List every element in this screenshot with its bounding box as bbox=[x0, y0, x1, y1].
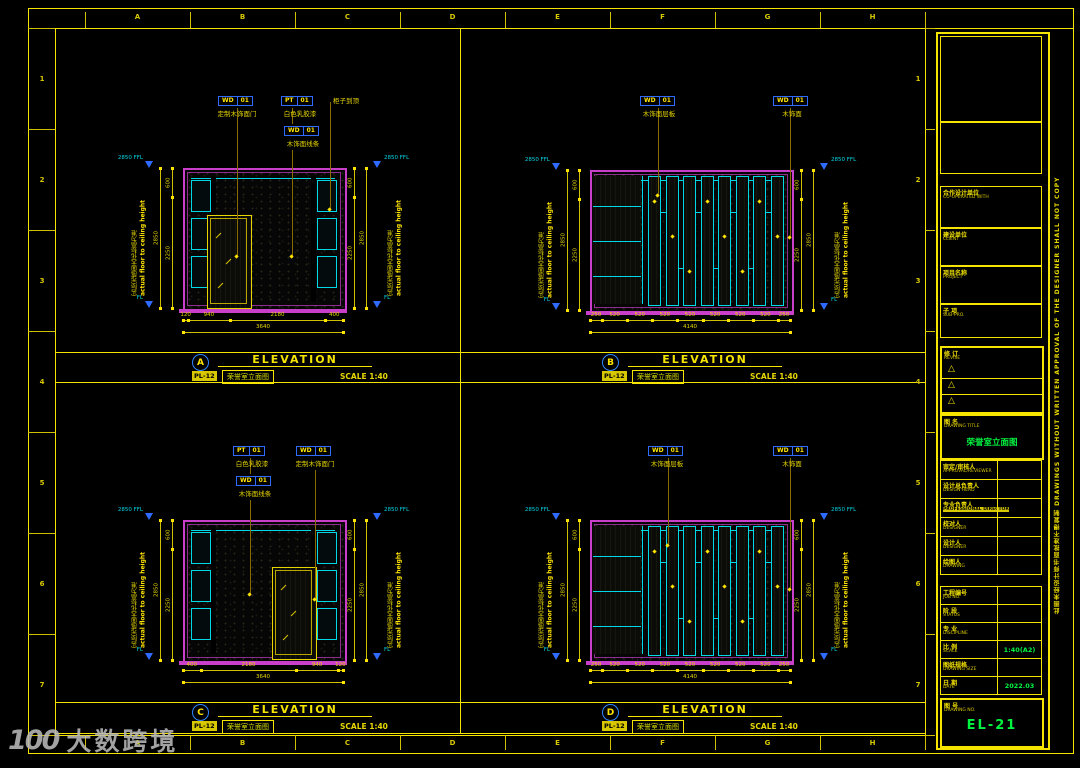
dim-value: 2250 bbox=[346, 239, 355, 267]
person-row: 设计总负责人DESIGN HEAD bbox=[940, 479, 1042, 499]
line bbox=[1073, 8, 1074, 754]
slat-panel bbox=[736, 176, 749, 306]
material-tag-text: 木饰面层板 bbox=[628, 108, 690, 118]
dim-tick bbox=[702, 669, 705, 672]
person-row: 设计人DESIGNER bbox=[940, 536, 1042, 556]
dim-tick bbox=[777, 669, 780, 672]
side-note-en: actual floor to ceiling height bbox=[842, 532, 850, 648]
level-text: 2850 FFL bbox=[831, 507, 871, 513]
person-row: 绘图人DRAWING bbox=[940, 555, 1042, 575]
material-tag-text: 白色乳胶漆 bbox=[221, 458, 283, 468]
dim-tick bbox=[295, 669, 298, 672]
field-label-en: DESIGNER bbox=[943, 545, 966, 550]
material-tag-code: WD bbox=[774, 97, 792, 105]
dim-tick bbox=[365, 519, 368, 522]
shelf-box bbox=[317, 180, 337, 212]
line bbox=[295, 735, 296, 750]
line bbox=[997, 480, 998, 498]
dim-tick bbox=[159, 659, 162, 662]
line bbox=[593, 556, 641, 557]
material-tag-text: 木饰面线条 bbox=[272, 138, 334, 148]
grid-letter-top: D bbox=[448, 13, 458, 21]
line bbox=[925, 735, 926, 750]
level-marker-icon bbox=[145, 161, 153, 168]
grid-letter-bottom: D bbox=[448, 739, 458, 747]
meta-row: 图纸规格DRAWING SIZE bbox=[940, 658, 1042, 677]
side-note-cn: 实际完成面天花标高为准 bbox=[834, 182, 842, 298]
material-tag-text: 定制木饰面门 bbox=[206, 108, 268, 118]
shelf-box bbox=[317, 570, 337, 602]
material-tag-code: 01 bbox=[667, 447, 682, 455]
elevation-mark: A bbox=[192, 354, 209, 371]
shelf-box bbox=[317, 532, 337, 564]
grid-letter-bottom: C bbox=[343, 739, 353, 747]
dim-value: 520 bbox=[678, 662, 702, 668]
field-label-en: PROJECT bbox=[943, 275, 962, 280]
level-text: 2850 FFL bbox=[384, 155, 424, 161]
slat-panel bbox=[753, 176, 766, 306]
material-tag: WD01 bbox=[236, 476, 271, 486]
line bbox=[942, 394, 1042, 395]
field-label-en: DISCIPLINE bbox=[943, 631, 968, 636]
dim-value: 600 bbox=[346, 521, 355, 549]
grid-letter-top: G bbox=[763, 13, 773, 21]
elevation-mark: D bbox=[602, 704, 619, 721]
line bbox=[28, 533, 55, 534]
level-marker-icon bbox=[552, 163, 560, 170]
dim-tick bbox=[589, 331, 592, 334]
dim-tick bbox=[676, 319, 679, 322]
side-note-en: actual floor to ceiling height bbox=[139, 532, 147, 648]
dim-value: 520 bbox=[703, 312, 727, 318]
material-tag: WD01 bbox=[640, 96, 675, 106]
line bbox=[997, 518, 998, 536]
line bbox=[593, 626, 641, 627]
line bbox=[315, 470, 316, 600]
wood-side-band bbox=[593, 526, 641, 654]
material-label: 柜子到顶 bbox=[333, 95, 359, 105]
level-marker-icon bbox=[820, 513, 828, 520]
cad-sheet: 100 大数跨境 AABBCCDDEEFFGGHH11223344556677W… bbox=[0, 0, 1080, 768]
slat-panel bbox=[718, 176, 731, 306]
logo-box bbox=[940, 36, 1042, 122]
material-tag-text: 木饰面 bbox=[761, 458, 823, 468]
dim-tick bbox=[342, 681, 345, 684]
meta-value: 1:40(A2) bbox=[998, 641, 1041, 658]
line bbox=[183, 332, 343, 333]
dim-value: 600 bbox=[571, 521, 580, 549]
line bbox=[925, 28, 926, 735]
line bbox=[997, 499, 998, 517]
level-marker-icon bbox=[373, 301, 381, 308]
dim-value: 520 bbox=[703, 662, 727, 668]
level-marker-icon bbox=[373, 653, 381, 660]
line bbox=[28, 129, 55, 130]
watermark-text: 大数跨境 bbox=[66, 722, 178, 758]
drawing-title-value: 荣誉室立面图 bbox=[942, 436, 1042, 448]
line bbox=[925, 331, 935, 332]
line bbox=[790, 458, 791, 590]
dim-value: 2180 bbox=[236, 662, 260, 668]
line bbox=[642, 526, 643, 654]
dim-tick bbox=[159, 519, 162, 522]
grid-number-left: 1 bbox=[36, 75, 48, 83]
line bbox=[997, 659, 998, 676]
dim-tick bbox=[342, 319, 345, 322]
material-tag-text: 木饰面层板 bbox=[636, 458, 698, 468]
side-note-cn: 实际完成面天花标高为准 bbox=[538, 532, 546, 648]
line bbox=[28, 28, 55, 29]
slat-panel bbox=[701, 176, 714, 306]
elevation-title: ELEVATION bbox=[220, 353, 370, 366]
dim-value: 2250 bbox=[346, 591, 355, 619]
material-tag-code: WD bbox=[641, 97, 659, 105]
level-marker-icon bbox=[552, 513, 560, 520]
line bbox=[211, 528, 216, 654]
grid-letter-bottom: F bbox=[658, 739, 668, 747]
dim-tick bbox=[365, 167, 368, 170]
wood-side-band bbox=[593, 176, 641, 304]
material-tag-code: WD bbox=[285, 127, 303, 135]
dim-tick bbox=[812, 659, 815, 662]
dim-value: 2180 bbox=[266, 312, 290, 318]
elevation-scale: SCALE 1:40 bbox=[340, 372, 388, 381]
grid-letter-bottom: B bbox=[238, 739, 248, 747]
level-text: 2850 FFL bbox=[510, 507, 550, 513]
line bbox=[593, 591, 641, 592]
watermark: 100 大数跨境 bbox=[8, 722, 178, 758]
line bbox=[218, 716, 372, 717]
grid-letter-top: A bbox=[133, 13, 143, 21]
material-tag-text: 木饰面 bbox=[761, 108, 823, 118]
dim-tick bbox=[578, 309, 581, 312]
line bbox=[55, 733, 925, 734]
grid-number-right: 1 bbox=[912, 75, 924, 83]
dim-tick bbox=[601, 669, 604, 672]
line bbox=[925, 28, 935, 29]
dim-value: 520 bbox=[653, 662, 677, 668]
dim-tick bbox=[589, 319, 592, 322]
line bbox=[292, 150, 293, 258]
dim-tick bbox=[342, 669, 345, 672]
side-note-en: actual floor to ceiling height bbox=[546, 182, 554, 298]
dim-tick bbox=[626, 669, 629, 672]
line bbox=[820, 735, 821, 750]
elevation-title: ELEVATION bbox=[630, 353, 780, 366]
elevation-scale: SCALE 1:40 bbox=[750, 372, 798, 381]
line bbox=[190, 735, 191, 750]
field-label-en: DESIGNER bbox=[943, 526, 966, 531]
line bbox=[593, 241, 641, 242]
line bbox=[55, 735, 935, 736]
line bbox=[610, 12, 611, 28]
elevation-scale: SCALE 1:40 bbox=[340, 722, 388, 731]
line bbox=[997, 461, 998, 479]
dim-value: 400 bbox=[180, 662, 204, 668]
material-tag: PT01 bbox=[281, 96, 313, 106]
shelf-box bbox=[191, 570, 211, 602]
dim-value: 520 bbox=[628, 662, 652, 668]
dim-tick bbox=[353, 659, 356, 662]
line bbox=[715, 735, 716, 750]
person-row: 专业负责人PROFESSIONAL DIRECTOR bbox=[940, 498, 1042, 518]
material-tag: PT01 bbox=[233, 446, 265, 456]
line bbox=[28, 753, 1073, 754]
side-note-en: actual floor to ceiling height bbox=[546, 532, 554, 648]
line bbox=[28, 28, 1073, 29]
dim-value: 600 bbox=[793, 521, 802, 549]
title-block-section: 建设单位CLIENT bbox=[940, 228, 1042, 266]
field-label-en: DESIGN HEAD bbox=[943, 488, 975, 493]
dim-tick bbox=[337, 669, 340, 672]
slat-panel bbox=[683, 526, 696, 656]
dim-tick bbox=[578, 659, 581, 662]
drawing-title-box: 图 名DRAWING TITLE荣誉室立面图 bbox=[940, 414, 1044, 460]
dim-value: 120 bbox=[328, 662, 352, 668]
level-marker-icon bbox=[373, 161, 381, 168]
line bbox=[820, 12, 821, 28]
material-tag-code: 01 bbox=[303, 127, 318, 135]
material-tag-code: 01 bbox=[297, 97, 312, 105]
elevation-mark: C bbox=[192, 704, 209, 721]
line bbox=[593, 206, 641, 207]
dim-value: 3640 bbox=[251, 324, 275, 330]
dim-tick bbox=[601, 319, 604, 322]
elevation-mark: B bbox=[602, 354, 619, 371]
slat-panel bbox=[753, 526, 766, 656]
dim-value: 400 bbox=[322, 312, 346, 318]
dim-tick bbox=[789, 319, 792, 322]
line bbox=[642, 176, 643, 304]
dim-value: 120 bbox=[174, 312, 198, 318]
level-marker-icon bbox=[145, 513, 153, 520]
dim-tick bbox=[171, 659, 174, 662]
elevation-subtitle: 荣誉室立面图 bbox=[632, 370, 684, 384]
level-text: 2850 FFL bbox=[384, 507, 424, 513]
material-tag-text: 木饰面线条 bbox=[224, 488, 286, 498]
material-tag-code: 01 bbox=[315, 447, 330, 455]
dim-value: 2850 bbox=[152, 576, 161, 604]
line bbox=[505, 12, 506, 28]
meta-row: 工程编号JOB NO. bbox=[940, 586, 1042, 605]
line bbox=[28, 8, 1073, 9]
side-note-en: actual floor to ceiling height bbox=[139, 180, 147, 296]
material-tag-code: WD bbox=[297, 447, 315, 455]
dim-value: 600 bbox=[164, 521, 173, 549]
person-row: 审定/审核人APPROVAL/REVIEWER bbox=[940, 460, 1042, 480]
dim-value: 2850 bbox=[152, 224, 161, 252]
drawing-no-box: 图 号DRAWING NO.EL-21 bbox=[940, 698, 1044, 748]
line bbox=[28, 432, 55, 433]
shelf-box bbox=[191, 180, 211, 212]
dim-value: 2850 bbox=[358, 224, 367, 252]
field-label-en: DRAWING NO. bbox=[944, 708, 975, 713]
shelf-box bbox=[317, 608, 337, 640]
dim-value: 520 bbox=[603, 662, 627, 668]
line bbox=[218, 366, 372, 367]
line bbox=[593, 276, 641, 277]
field-label-en: APPROVAL/REVIEWER bbox=[943, 469, 992, 474]
drawing-no-value: EL-21 bbox=[942, 718, 1042, 733]
line bbox=[295, 12, 296, 28]
grid-number-left: 5 bbox=[36, 479, 48, 487]
dim-tick bbox=[566, 519, 569, 522]
level-text: 2850 FFL bbox=[103, 507, 143, 513]
elevation-ref-tag: PL-12 bbox=[192, 371, 217, 381]
line bbox=[628, 366, 782, 367]
dim-value: 520 bbox=[653, 312, 677, 318]
dim-tick bbox=[159, 167, 162, 170]
dim-tick bbox=[702, 319, 705, 322]
dim-value: 940 bbox=[197, 312, 221, 318]
shelf-box bbox=[191, 532, 211, 564]
dim-tick bbox=[182, 681, 185, 684]
line bbox=[997, 623, 998, 640]
dim-tick bbox=[159, 307, 162, 310]
line bbox=[790, 108, 791, 238]
dim-tick bbox=[566, 659, 569, 662]
line bbox=[925, 230, 935, 231]
line bbox=[28, 634, 55, 635]
line bbox=[628, 716, 782, 717]
level-marker-icon bbox=[820, 303, 828, 310]
line bbox=[183, 682, 343, 683]
line bbox=[237, 108, 238, 257]
logo-box bbox=[940, 122, 1042, 174]
line bbox=[658, 108, 659, 196]
grid-letter-top: C bbox=[343, 13, 353, 21]
material-tag: WD01 bbox=[648, 446, 683, 456]
dim-tick bbox=[727, 319, 730, 322]
slat-panel bbox=[666, 176, 679, 306]
material-tag-code: WD bbox=[237, 477, 255, 485]
dim-tick bbox=[342, 331, 345, 334]
level-marker-icon bbox=[552, 653, 560, 660]
field-label-en: SUB-PRO. bbox=[943, 313, 965, 318]
elevation-scale: SCALE 1:40 bbox=[750, 722, 798, 731]
revision-delta-icon: △ bbox=[948, 380, 955, 390]
line bbox=[183, 320, 343, 321]
elevation-ref-tag: PL-12 bbox=[192, 721, 217, 731]
grid-letter-top: B bbox=[238, 13, 248, 21]
dim-tick bbox=[651, 319, 654, 322]
material-tag: WD01 bbox=[773, 446, 808, 456]
dim-value: 4140 bbox=[678, 674, 702, 680]
watermark-logo-icon: 100 bbox=[8, 725, 58, 756]
grid-number-right: 7 bbox=[912, 681, 924, 689]
dim-tick bbox=[752, 669, 755, 672]
material-tag-code: 01 bbox=[255, 477, 270, 485]
grid-letter-top: E bbox=[553, 13, 563, 21]
dim-tick bbox=[777, 319, 780, 322]
dim-value: 250 bbox=[772, 662, 796, 668]
line bbox=[997, 556, 998, 574]
dim-tick bbox=[324, 319, 327, 322]
shelf-box bbox=[191, 608, 211, 640]
dim-tick bbox=[353, 307, 356, 310]
dim-tick bbox=[182, 319, 185, 322]
title-block: 合作设计单位CO-OPERATED WITH建设单位CLIENT项目名称PROJ… bbox=[936, 32, 1050, 750]
line bbox=[925, 735, 935, 736]
grid-letter-bottom: E bbox=[553, 739, 563, 747]
dim-value: 2850 bbox=[358, 576, 367, 604]
material-tag-code: PT bbox=[234, 447, 249, 455]
level-text: 2850 FFL bbox=[103, 155, 143, 161]
dim-value: 520 bbox=[728, 662, 752, 668]
line bbox=[925, 12, 926, 28]
dim-tick bbox=[626, 319, 629, 322]
line bbox=[28, 8, 29, 754]
line bbox=[28, 331, 55, 332]
dim-tick bbox=[651, 669, 654, 672]
slat-panel bbox=[718, 526, 731, 656]
dim-tick bbox=[589, 669, 592, 672]
level-text: 2850 FFL bbox=[831, 157, 871, 163]
level-marker-icon bbox=[820, 163, 828, 170]
grid-number-right: 6 bbox=[912, 580, 924, 588]
dim-value: 600 bbox=[571, 171, 580, 199]
slat-panel bbox=[683, 176, 696, 306]
dim-tick bbox=[789, 669, 792, 672]
grid-number-right: 2 bbox=[912, 176, 924, 184]
side-note-cn: 实际完成面天花标高为准 bbox=[538, 182, 546, 298]
line bbox=[400, 735, 401, 750]
dim-value: 520 bbox=[728, 312, 752, 318]
meta-row: 日 期DATE2022.03 bbox=[940, 676, 1042, 695]
side-note-en: actual floor to ceiling height bbox=[395, 532, 403, 648]
line bbox=[925, 634, 935, 635]
material-tag-code: WD bbox=[219, 97, 237, 105]
slat-panel bbox=[771, 176, 784, 306]
grid-letter-top: H bbox=[868, 13, 878, 21]
level-marker-icon bbox=[373, 513, 381, 520]
material-tag-code: 01 bbox=[659, 97, 674, 105]
line bbox=[925, 533, 935, 534]
dim-value: 2850 bbox=[805, 576, 814, 604]
line bbox=[460, 28, 461, 733]
line bbox=[190, 12, 191, 28]
dim-value: 600 bbox=[346, 169, 355, 197]
material-tag-code: 01 bbox=[249, 447, 264, 455]
field-label-en: DATE bbox=[943, 685, 955, 690]
dim-tick bbox=[200, 669, 203, 672]
field-label-en: REVISE bbox=[944, 356, 960, 361]
elevation-title: ELEVATION bbox=[220, 703, 370, 716]
dim-value: 4140 bbox=[678, 324, 702, 330]
dim-value: 600 bbox=[164, 169, 173, 197]
line bbox=[400, 12, 401, 28]
line bbox=[85, 12, 86, 28]
line bbox=[942, 378, 1042, 379]
grid-number-right: 5 bbox=[912, 479, 924, 487]
grid-number-right: 3 bbox=[912, 277, 924, 285]
line bbox=[997, 587, 998, 604]
line bbox=[997, 605, 998, 622]
field-label-en: STATUS bbox=[943, 613, 960, 618]
dim-tick bbox=[800, 309, 803, 312]
slat-panel bbox=[701, 526, 714, 656]
grid-number-right: 4 bbox=[912, 378, 924, 386]
slat-panel bbox=[648, 526, 661, 656]
elevation-subtitle: 荣誉室立面图 bbox=[222, 370, 274, 384]
material-tag: WD01 bbox=[296, 446, 331, 456]
side-note-cn: 实际完成面天花标高为准 bbox=[131, 532, 139, 648]
line bbox=[668, 458, 669, 546]
dim-value: 250 bbox=[772, 312, 796, 318]
field-label-en: PROFESSIONAL DIRECTOR bbox=[943, 507, 1009, 512]
line bbox=[925, 432, 935, 433]
grid-number-left: 4 bbox=[36, 378, 48, 386]
